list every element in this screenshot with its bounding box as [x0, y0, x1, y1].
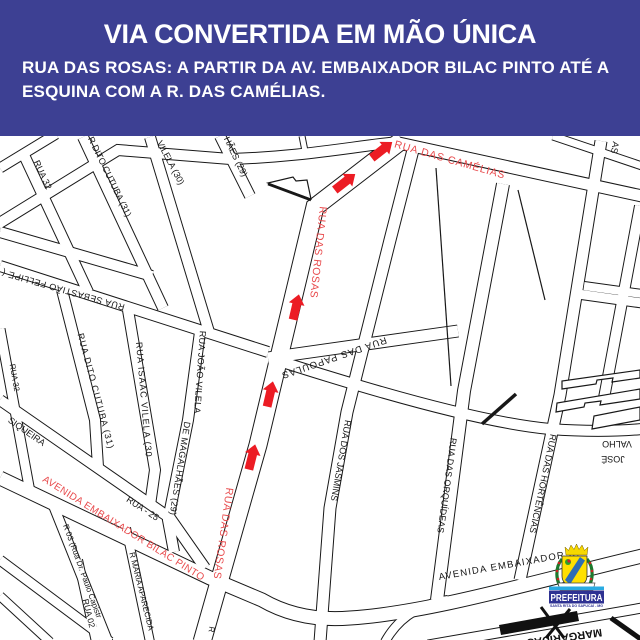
svg-text:SANTA RITA DO SAPUCAÍ - MG: SANTA RITA DO SAPUCAÍ - MG — [550, 603, 603, 608]
svg-text:PREFEITURA: PREFEITURA — [551, 592, 603, 604]
svg-text:VALHO: VALHO — [602, 439, 632, 449]
svg-text:AS: AS — [609, 141, 621, 155]
svg-text:JOSÉ: JOSÉ — [601, 454, 625, 464]
